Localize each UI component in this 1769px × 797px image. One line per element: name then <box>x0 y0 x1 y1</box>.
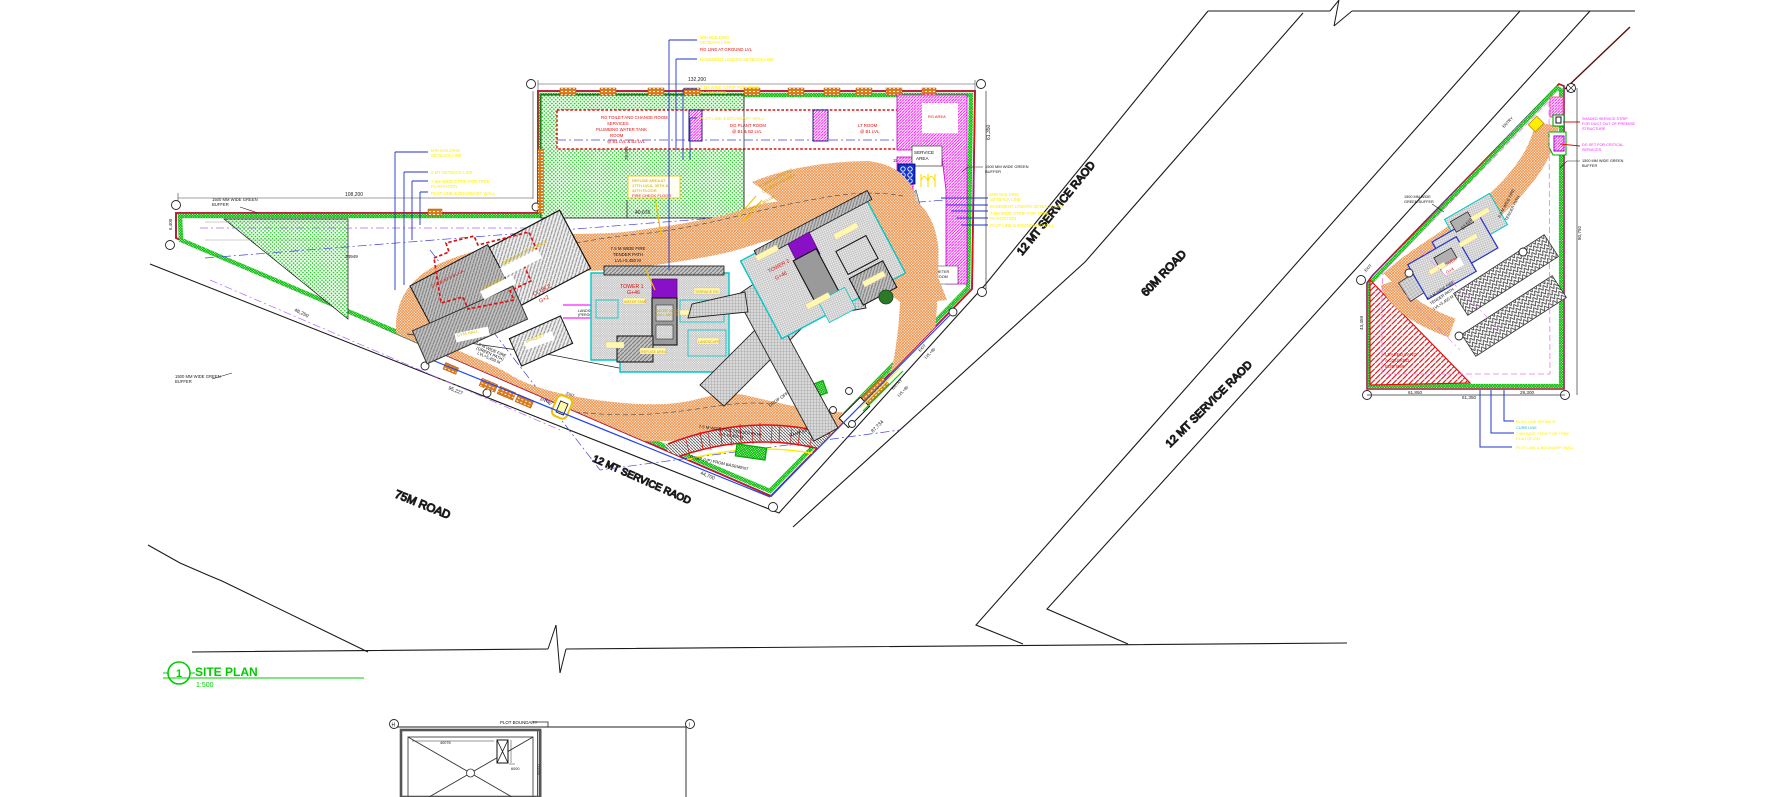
svg-text:1500 MM WIDE GREEN: 1500 MM WIDE GREEN <box>1582 159 1624 163</box>
svg-text:PLOT LINE & BOUNDARY WALL: PLOT LINE & BOUNDARY WALL <box>990 223 1055 228</box>
svg-text:60000: 60000 <box>537 764 541 775</box>
svg-text:RG AREA: RG AREA <box>928 114 946 119</box>
svg-text:BUFFER: BUFFER <box>1582 164 1597 168</box>
svg-text:PLANTATION: PLANTATION <box>990 216 1016 221</box>
svg-text:DG SET FOR CRITICAL: DG SET FOR CRITICAL <box>1582 143 1624 147</box>
svg-text:7.5 M WIDE FIRE: 7.5 M WIDE FIRE <box>611 246 646 251</box>
svg-text:SERVICES: SERVICES <box>607 121 629 126</box>
svg-text:G+46: G+46 <box>627 290 640 296</box>
svg-text:1: 1 <box>176 668 182 680</box>
svg-text:108,200: 108,200 <box>345 192 363 198</box>
svg-text:BUFFER: BUFFER <box>985 169 1001 174</box>
svg-text:43,459: 43,459 <box>1359 316 1364 330</box>
svg-text:SETBACK LINE: SETBACK LINE <box>431 153 462 158</box>
svg-text:LT ROOM: LT ROOM <box>858 123 878 128</box>
svg-text:SITE PLAN: SITE PLAN <box>195 665 258 679</box>
svg-text:28,804: 28,804 <box>624 146 629 160</box>
svg-text:40,676: 40,676 <box>635 210 651 216</box>
svg-text:BASEMENT LINE/RG SETBACK LINE: BASEMENT LINE/RG SETBACK LINE <box>990 204 1064 209</box>
svg-text:SETBACK LINE: SETBACK LINE <box>700 40 731 45</box>
svg-text:PLOT LINE & BOUNDARY WALL: PLOT LINE & BOUNDARY WALL <box>700 116 765 121</box>
svg-text:PLOT BOUNDARY: PLOT BOUNDARY <box>500 720 537 725</box>
svg-text:61,350: 61,350 <box>986 124 992 140</box>
svg-text:AREA: AREA <box>916 156 929 161</box>
svg-text:1500 MM WIDE: 1500 MM WIDE <box>1404 195 1431 199</box>
svg-text:PLOT LINE & BOUNDARY WALL: PLOT LINE & BOUNDARY WALL <box>431 191 496 196</box>
svg-text:@ B1 LVL: @ B1 LVL <box>860 129 880 134</box>
svg-text:LVL+5,450 M: LVL+5,450 M <box>615 258 641 263</box>
svg-text:34949: 34949 <box>345 254 358 259</box>
svg-text:BUFFER: BUFFER <box>212 202 229 207</box>
svg-text:1:500: 1:500 <box>196 682 214 689</box>
svg-text:6000: 6000 <box>511 767 519 771</box>
svg-text:SHADED SERVICE STRIP: SHADED SERVICE STRIP <box>1582 117 1628 121</box>
svg-text:ROOM: ROOM <box>610 133 624 138</box>
svg-text:TENDER PATH: TENDER PATH <box>613 252 643 257</box>
svg-text:6 MT SETBACK LINE: 6 MT SETBACK LINE <box>431 170 473 175</box>
svg-text:80,792: 80,792 <box>1577 226 1582 240</box>
svg-text:RG TOILET AND CHANGE ROOM: RG TOILET AND CHANGE ROOM <box>601 115 668 120</box>
svg-text:PLANTATION: PLANTATION <box>1516 436 1540 441</box>
svg-text:H: H <box>392 723 396 729</box>
svg-text:RG LINE AT GROUND LVL: RG LINE AT GROUND LVL <box>700 47 753 52</box>
svg-text:TERRACE RG: TERRACE RG <box>695 290 719 294</box>
svg-text:ACQUIRED: ACQUIRED <box>1385 358 1410 363</box>
svg-text:BASEMENT LINE/RG SETBACK LINE: BASEMENT LINE/RG SETBACK LINE <box>700 57 774 62</box>
svg-text:STRUCTURE: STRUCTURE <box>1582 127 1606 131</box>
svg-text:FOR R99: FOR R99 <box>1385 364 1405 369</box>
svg-text:WALL ABOVE: WALL ABOVE <box>655 313 678 317</box>
svg-text:WATER TANK: WATER TANK <box>624 300 647 304</box>
svg-text:PLUMBING WATER TANK: PLUMBING WATER TANK <box>596 127 647 132</box>
svg-text:@ B1 LVL & B2 LVL: @ B1 LVL & B2 LVL <box>607 139 646 144</box>
svg-text:LEASED LAND: LEASED LAND <box>1385 352 1417 357</box>
svg-text:CURB LINE: CURB LINE <box>1516 425 1537 430</box>
svg-text:REFUGE AREA: REFUGE AREA <box>641 350 667 354</box>
svg-text:SERVICE: SERVICE <box>914 150 934 155</box>
svg-text:LANDSCAPE: LANDSCAPE <box>698 340 720 344</box>
svg-text:@ B1 & B2 LVL: @ B1 & B2 LVL <box>732 129 762 134</box>
svg-text:PLOT LINE & BOUNDARY WALL: PLOT LINE & BOUNDARY WALL <box>1516 445 1575 450</box>
svg-text:GREEN BUFFER: GREEN BUFFER <box>1404 200 1434 204</box>
svg-text:SERVICES: SERVICES <box>1582 148 1602 152</box>
svg-text:40076: 40076 <box>440 741 451 745</box>
svg-text:FIRE CHECK FLOOR: FIRE CHECK FLOOR <box>632 193 671 198</box>
svg-text:PLANTATION: PLANTATION <box>431 184 457 189</box>
svg-text:BUFFER: BUFFER <box>175 379 192 384</box>
svg-text:61,850: 61,850 <box>1408 390 1422 395</box>
svg-text:PLANTATION: PLANTATION <box>700 90 726 95</box>
svg-text:FOR DUCT OUT OF PREMISE: FOR DUCT OUT OF PREMISE <box>1582 122 1635 126</box>
svg-text:132,200: 132,200 <box>688 77 706 83</box>
svg-text:SETBACK LINE: SETBACK LINE <box>990 197 1021 202</box>
svg-text:BLDG LINE SETBACK: BLDG LINE SETBACK <box>1516 419 1556 424</box>
svg-text:I: I <box>689 723 690 729</box>
svg-text:29,300: 29,300 <box>1520 390 1534 395</box>
svg-text:6,400: 6,400 <box>168 218 173 230</box>
svg-text:DG PLANT ROOM: DG PLANT ROOM <box>730 123 766 128</box>
svg-text:61,350: 61,350 <box>1462 395 1476 400</box>
